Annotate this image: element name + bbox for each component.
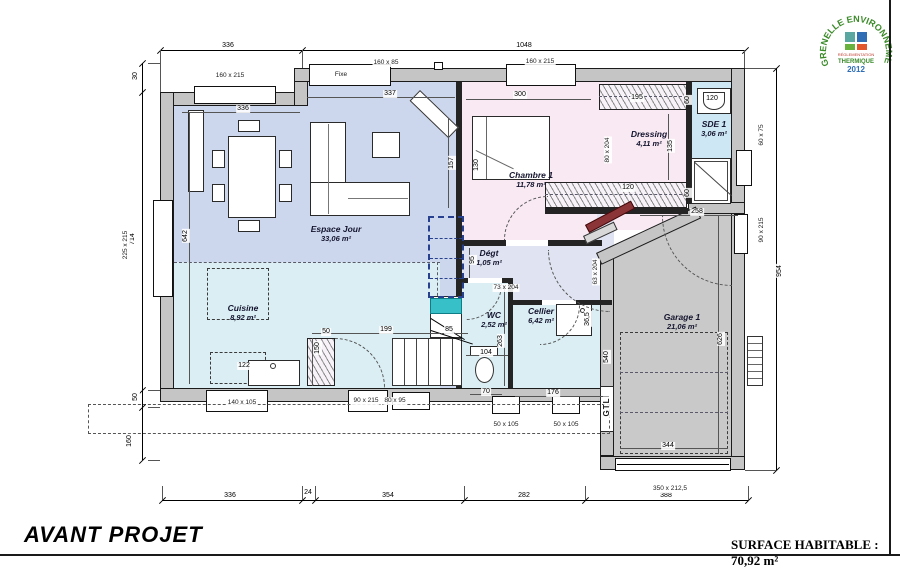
dim-label: 282	[517, 492, 531, 500]
witness-line	[160, 50, 161, 92]
room-label: SDE 13,06 m²	[701, 119, 727, 139]
garage-door-zone-line	[620, 412, 728, 413]
dim-label: 30	[132, 71, 140, 81]
logo-square-4	[857, 44, 867, 50]
room-area: 3,06 m²	[701, 129, 727, 139]
dim-label: 344	[661, 442, 675, 450]
witness-line	[464, 486, 465, 500]
room-label: Chambre 111,78 m²	[509, 170, 553, 190]
dim-label: GTL	[603, 397, 611, 418]
dim-label: 157	[448, 156, 456, 170]
dim-label: 337	[383, 90, 397, 98]
dim-line-inner	[640, 215, 738, 216]
window-bedroom	[506, 64, 576, 86]
dim-label: 354	[381, 492, 395, 500]
wall-right	[731, 68, 745, 470]
room-name: Espace Jour	[311, 224, 362, 234]
room-name: Dégt	[476, 248, 502, 258]
room-label: Dégt1,05 m²	[476, 248, 502, 268]
dim-label: 50	[132, 392, 140, 402]
dim-label: 85	[444, 326, 454, 334]
witness-line	[748, 486, 749, 500]
dim-label: 60	[684, 95, 692, 105]
room-label: Cuisine8,92 m²	[228, 303, 259, 323]
room-label: Garage 121,06 m²	[664, 312, 700, 332]
room-name: Garage 1	[664, 312, 700, 322]
project-title: AVANT PROJET	[24, 522, 203, 548]
garage-door-zone	[620, 332, 728, 454]
exterior-unit	[747, 336, 763, 386]
dim-label: 225 x 215	[122, 230, 130, 261]
dim-label: Fixe	[334, 71, 348, 79]
dim-label: 90 x 215	[353, 397, 380, 405]
stair-flight	[392, 338, 462, 386]
dim-line-inner	[466, 99, 591, 100]
dim-label: 60	[684, 188, 692, 198]
door-garage-side	[734, 214, 748, 254]
stair-upper-tread2	[430, 258, 462, 259]
dim-label: 160 x 85	[373, 59, 400, 67]
kitchen-faucet	[270, 363, 276, 369]
dim-label: 540	[603, 350, 611, 364]
kitchen-boundary-dash	[174, 262, 440, 263]
stair-upper-tread1	[430, 238, 462, 239]
logo-line3: 2012	[847, 65, 865, 74]
bed-pillow-line	[486, 117, 487, 179]
dining-chair	[238, 220, 260, 232]
dim-label: 63 x 204	[592, 259, 600, 286]
witness-line	[585, 486, 586, 500]
dining-chair	[212, 184, 225, 202]
witness-line	[148, 63, 160, 64]
drawing-sheet: 3361048336337300195601201351206025864215…	[0, 0, 900, 560]
garage-door-line	[617, 464, 729, 465]
dim-label: 73 x 204	[493, 284, 520, 292]
dim-line-inner	[312, 338, 313, 386]
dim-label: 195	[630, 94, 644, 102]
dim-line-inner	[312, 333, 440, 334]
dim-line-top	[160, 50, 745, 51]
dim-label: 160	[126, 434, 134, 448]
dim-label: 135	[667, 139, 675, 153]
dim-label: 150	[314, 341, 322, 355]
dim-label: 176	[546, 389, 560, 397]
closet-dressing-bottom-line	[545, 194, 687, 195]
dim-label: 50 x 105	[493, 421, 520, 429]
dim-label: 160 x 215	[215, 72, 246, 80]
witness-line	[745, 68, 776, 69]
stair-upper-dashed	[428, 216, 464, 298]
dim-label: 1048	[515, 42, 533, 50]
dim-line-inner	[515, 396, 609, 397]
dim-label: 300	[513, 91, 527, 99]
dining-chair	[238, 120, 260, 132]
surface-habitable-label: SURFACE HABITABLE : 70,92 m²	[731, 537, 900, 569]
dim-label: 80 x 95	[383, 397, 406, 405]
sheet-frame-bottom	[0, 554, 900, 556]
room-label: Espace Jour33,06 m²	[311, 224, 362, 244]
dim-label: 122	[237, 362, 251, 370]
dim-label: 350 x 212,5	[652, 485, 688, 493]
dining-chair	[279, 184, 292, 202]
dining-chair	[279, 150, 292, 168]
dim-label: 80 x 204	[604, 137, 612, 164]
dim-label: 70	[481, 388, 491, 396]
room-label: Cellier6,42 m²	[528, 306, 554, 326]
dim-label: 714	[129, 232, 137, 246]
witness-line	[162, 486, 163, 500]
room-label: Dressing4,11 m²	[631, 129, 667, 149]
sofa-cushion-line	[328, 124, 329, 214]
window-fixe	[309, 64, 391, 86]
dim-label: 50	[321, 328, 331, 336]
dim-line-bottom	[162, 500, 748, 501]
dim-label: 130	[473, 158, 481, 172]
dim-label: 50 x 105	[553, 421, 580, 429]
window-sde-right	[736, 150, 752, 186]
dim-label: 642	[182, 229, 190, 243]
room-area: 4,11 m²	[631, 139, 667, 149]
dim-label: 120	[705, 95, 719, 103]
room-area: 11,78 m²	[509, 180, 553, 190]
dim-label: 258	[690, 208, 704, 216]
dim-label: 336	[221, 42, 235, 50]
room-name: Cuisine	[228, 303, 259, 313]
logo-square-2	[857, 32, 867, 42]
room-area: 6,42 m²	[528, 316, 554, 326]
dim-label: 336	[236, 105, 250, 113]
dim-label: 626	[717, 332, 725, 346]
dim-label: 263	[497, 334, 505, 348]
dim-line-left	[142, 63, 143, 460]
room-label: WC2,52 m²	[481, 310, 507, 330]
witness-line	[744, 50, 745, 68]
door-gap-wc	[468, 278, 502, 283]
dim-label: 95	[469, 255, 477, 265]
dim-label: 24	[303, 489, 313, 497]
sofa-horizontal	[310, 182, 410, 216]
toilet-bowl	[475, 357, 494, 383]
witness-line	[745, 470, 776, 471]
dim-label: 104	[479, 349, 493, 357]
dim-label: 120	[621, 184, 635, 192]
room-name: Dressing	[631, 129, 667, 139]
wall-wc-cellier	[508, 278, 513, 388]
dim-line-inner	[307, 97, 455, 98]
dining-chair	[212, 150, 225, 168]
room-name: Cellier	[528, 306, 554, 316]
sideboard	[188, 110, 204, 192]
room-area: 21,06 m²	[664, 322, 700, 332]
dim-label: 954	[776, 264, 784, 278]
witness-line	[315, 486, 316, 500]
room-area: 8,92 m²	[228, 313, 259, 323]
door-gap-bedroom	[506, 240, 548, 246]
room-area: 2,52 m²	[481, 320, 507, 330]
stair-teal-step	[430, 298, 462, 314]
sheet-frame-right	[889, 0, 891, 556]
witness-line	[148, 407, 160, 408]
witness-line	[302, 50, 303, 68]
coffee-table	[372, 132, 400, 158]
room-name: WC	[481, 310, 507, 320]
window-living-left	[153, 200, 173, 297]
dim-label: 160 x 215	[525, 58, 556, 66]
terrace-outline	[88, 404, 610, 434]
attic-hatch	[434, 62, 443, 70]
dim-label: 90 x 215	[758, 217, 766, 244]
dim-line-inner	[189, 112, 190, 384]
room-name: Chambre 1	[509, 170, 553, 180]
witness-line	[148, 390, 160, 391]
grenelle-environnement-logo: GRENELLE ENVIRONNEMENT RÉGLEMENTATION TH…	[818, 8, 894, 84]
dim-tick	[139, 457, 146, 464]
sofa-cushion-line	[348, 198, 408, 199]
dim-label: 336	[223, 492, 237, 500]
witness-line	[148, 460, 160, 461]
room-name: SDE 1	[701, 119, 727, 129]
dim-label: 199	[379, 326, 393, 334]
closet-dressing-bottom	[545, 182, 687, 208]
dim-label: 140 x 105	[227, 399, 258, 407]
logo-line1: RÉGLEMENTATION	[838, 52, 875, 57]
stair-upper-tread3	[430, 278, 462, 279]
logo-square-1	[845, 32, 855, 42]
window-living-top	[194, 86, 276, 104]
logo-square-3	[845, 44, 855, 50]
room-area: 1,05 m²	[476, 258, 502, 268]
dining-table	[228, 136, 276, 218]
dim-label: 36,5	[584, 311, 592, 327]
garage-door-zone-line	[620, 372, 728, 373]
dim-label: 388	[659, 492, 673, 500]
dim-label: 60 x 75	[758, 123, 766, 146]
room-area: 33,06 m²	[311, 234, 362, 244]
